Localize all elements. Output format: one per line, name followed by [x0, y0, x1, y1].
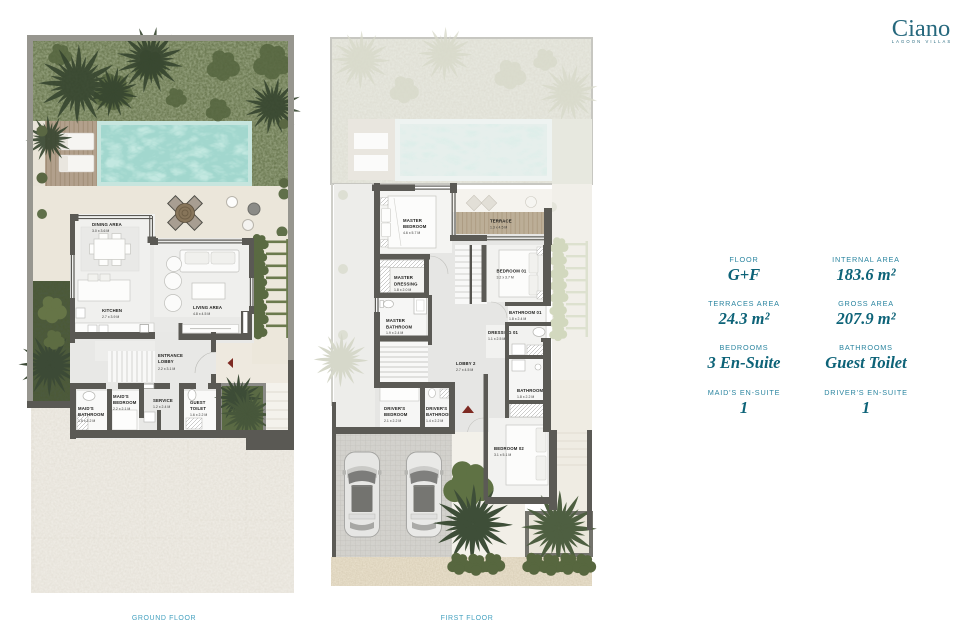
svg-text:BATHROOM: BATHROOM: [78, 412, 104, 417]
svg-text:2.2 x 2.1 M: 2.2 x 2.1 M: [113, 407, 130, 411]
svg-text:TOILET: TOILET: [190, 406, 206, 411]
svg-text:BATHROOM: BATHROOM: [426, 412, 452, 417]
svg-text:3.1 x 5.1 M: 3.1 x 5.1 M: [494, 453, 511, 457]
svg-text:LAGOON VILLAS: LAGOON VILLAS: [892, 39, 953, 44]
svg-text:3.0 x 3.6 M: 3.0 x 3.6 M: [92, 229, 109, 233]
svg-text:1.2 x 2.4 M: 1.2 x 2.4 M: [153, 405, 170, 409]
svg-text:1.1 x 2.5 M: 1.1 x 2.5 M: [488, 337, 505, 341]
svg-text:1.8 x 2.0 M: 1.8 x 2.0 M: [394, 288, 411, 292]
svg-text:INTERNAL AREA: INTERNAL AREA: [832, 255, 900, 264]
svg-text:24.3 m²: 24.3 m²: [718, 309, 771, 328]
svg-text:1.8 x 2.4 M: 1.8 x 2.4 M: [509, 317, 526, 321]
svg-text:FIRST FLOOR: FIRST FLOOR: [441, 615, 494, 622]
svg-text:1.3 x 4.5 M: 1.3 x 4.5 M: [490, 226, 507, 230]
svg-text:2.7 x 4.5 M: 2.7 x 4.5 M: [456, 368, 473, 372]
svg-text:4.6 x 5.7 M: 4.6 x 5.7 M: [403, 231, 420, 235]
svg-text:2.1 x 2.2 M: 2.1 x 2.2 M: [384, 419, 401, 423]
svg-text:SERVICE: SERVICE: [153, 398, 173, 403]
svg-text:LIVING AREA: LIVING AREA: [193, 305, 222, 310]
svg-text:MASTER: MASTER: [394, 275, 414, 280]
svg-text:TERRACES AREA: TERRACES AREA: [708, 299, 780, 308]
svg-text:DINING AREA: DINING AREA: [92, 222, 122, 227]
svg-text:DRIVER'S: DRIVER'S: [426, 406, 447, 411]
svg-text:Guest Toilet: Guest Toilet: [825, 353, 907, 372]
svg-text:BEDROOM: BEDROOM: [384, 412, 408, 417]
svg-text:MAID'S EN-SUITE: MAID'S EN-SUITE: [708, 388, 781, 397]
svg-text:MAID'S: MAID'S: [78, 406, 94, 411]
svg-text:1.9 x 2.4 M: 1.9 x 2.4 M: [386, 331, 403, 335]
svg-text:1: 1: [740, 398, 748, 417]
svg-text:BEDROOMS: BEDROOMS: [720, 343, 769, 352]
svg-text:G+F: G+F: [728, 265, 760, 284]
svg-text:GROUND FLOOR: GROUND FLOOR: [132, 615, 196, 622]
svg-text:DRESSING 01: DRESSING 01: [488, 330, 519, 335]
svg-text:4.8 x 4.5 M: 4.8 x 4.5 M: [193, 312, 210, 316]
svg-text:BEDROOM: BEDROOM: [403, 224, 427, 229]
svg-text:LOBBY: LOBBY: [158, 359, 174, 364]
svg-text:TERRACE: TERRACE: [490, 219, 512, 224]
svg-text:BEDROOM 02: BEDROOM 02: [494, 446, 524, 451]
svg-text:MASTER: MASTER: [403, 218, 423, 223]
svg-text:MASTER: MASTER: [386, 318, 406, 323]
svg-text:GUEST: GUEST: [190, 400, 206, 405]
svg-text:DRIVER'S: DRIVER'S: [384, 406, 405, 411]
svg-text:1: 1: [862, 398, 870, 417]
svg-text:1.4 x 2.2 M: 1.4 x 2.2 M: [426, 419, 443, 423]
svg-text:LOBBY 2: LOBBY 2: [456, 361, 476, 366]
svg-text:Ciano: Ciano: [892, 15, 951, 42]
svg-text:1.6 x 2.2 M: 1.6 x 2.2 M: [190, 413, 207, 417]
svg-text:MAID'S: MAID'S: [113, 394, 129, 399]
svg-text:BEDROOM 01: BEDROOM 01: [497, 269, 527, 274]
svg-text:GROSS AREA: GROSS AREA: [838, 299, 894, 308]
svg-text:3.2 x 3.7 M: 3.2 x 3.7 M: [497, 276, 514, 280]
svg-text:1.5 x 2.2 M: 1.5 x 2.2 M: [78, 419, 95, 423]
svg-text:ENTRANCE: ENTRANCE: [158, 353, 183, 358]
svg-text:207.9 m²: 207.9 m²: [835, 309, 896, 328]
svg-text:2.2 x 3.1 M: 2.2 x 3.1 M: [158, 367, 175, 371]
svg-text:1.8 x 2.2 M: 1.8 x 2.2 M: [517, 395, 534, 399]
svg-text:BATHROOM 01: BATHROOM 01: [509, 310, 542, 315]
svg-text:3 En-Suite: 3 En-Suite: [707, 353, 781, 372]
svg-text:FLOOR: FLOOR: [729, 255, 758, 264]
svg-text:KITCHEN: KITCHEN: [102, 308, 122, 313]
svg-text:BEDROOM: BEDROOM: [113, 400, 137, 405]
svg-text:DRIVER'S EN-SUITE: DRIVER'S EN-SUITE: [824, 388, 908, 397]
svg-text:2.7 x 3.9 M: 2.7 x 3.9 M: [102, 315, 119, 319]
svg-text:BATHROOMS: BATHROOMS: [839, 343, 893, 352]
svg-text:183.6 m²: 183.6 m²: [836, 265, 896, 284]
svg-text:DRESSING: DRESSING: [394, 282, 418, 287]
svg-text:BATHROOM: BATHROOM: [386, 325, 412, 330]
